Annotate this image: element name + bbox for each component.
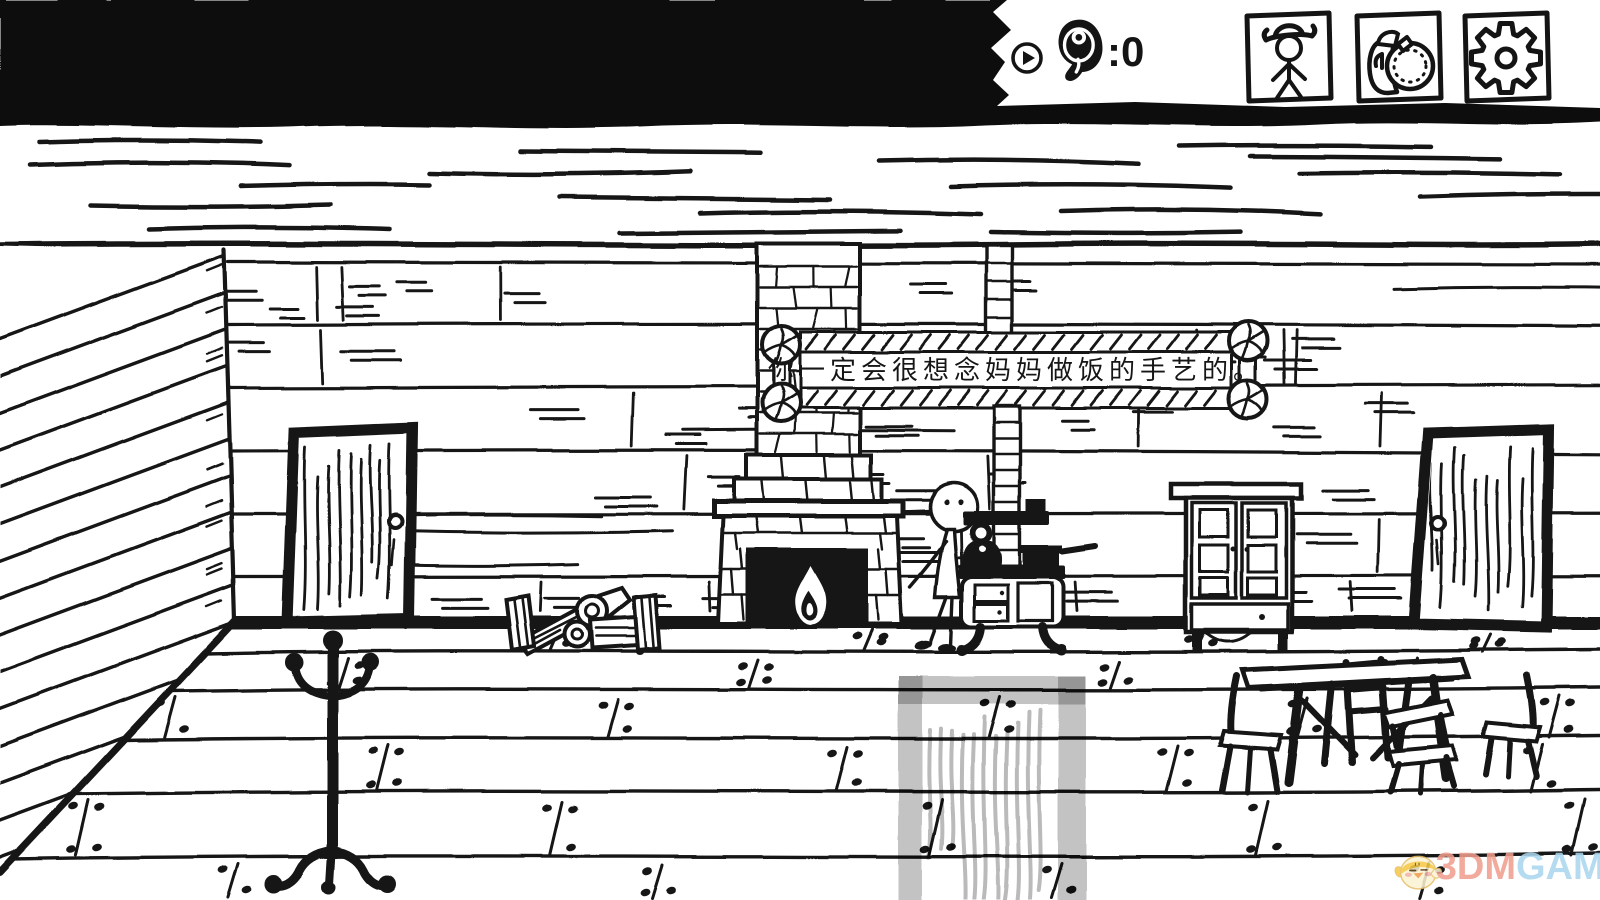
wood-beam [0,140,1600,245]
eye [958,499,963,504]
character-button[interactable] [1241,8,1335,104]
rosette-icon [762,384,800,422]
kettle-handle [973,525,990,542]
meat-currency: :0 [1051,14,1171,94]
dining-set[interactable] [1220,659,1540,794]
cabinet[interactable] [1171,484,1301,650]
pan-handle [1062,546,1095,551]
doorknob [1432,517,1445,530]
watermark: 3DMGAME [1390,834,1600,900]
hud-panel: :0 [985,0,1600,108]
eye [944,499,949,504]
chair-left[interactable] [1220,676,1281,792]
watermark-text: 3DMGAME [1436,848,1600,886]
chair-right[interactable] [1483,675,1540,776]
play-icon [1009,40,1045,76]
rug[interactable] [898,676,1086,900]
meat-count: :0 [1107,28,1144,76]
canteen-backpack-icon [1351,8,1445,104]
door-right[interactable] [1414,429,1549,627]
stovepipe-upper [986,245,1012,333]
doorknob [389,516,402,529]
fireplace[interactable] [714,455,903,626]
mantel [714,501,903,516]
settings-button[interactable] [1459,8,1553,104]
watermark-brand-left: 3DM [1436,846,1516,888]
baseboard [224,616,1600,629]
rosette-icon [1229,380,1267,418]
door-left[interactable] [287,427,412,622]
cowboy-hat-stickfigure-icon [1241,8,1335,104]
firewood-pile[interactable] [506,588,662,655]
left-wall [0,246,240,900]
gear-icon [1459,8,1553,104]
play-speed-button[interactable] [1009,40,1045,76]
game-viewport: 你一定会很想念妈妈做饭的手艺的。 :0 [0,0,1600,900]
scene-canvas: 你一定会很想念妈妈做饭的手艺的。 [0,0,1600,900]
meat-icon [1051,14,1105,86]
sign-caption: 你一定会很想念妈妈做饭的手艺的。 [768,355,1264,385]
stovepipe-lower [994,406,1020,568]
inventory-button[interactable] [1351,8,1445,104]
watermark-brand-right: GAME [1516,846,1600,888]
